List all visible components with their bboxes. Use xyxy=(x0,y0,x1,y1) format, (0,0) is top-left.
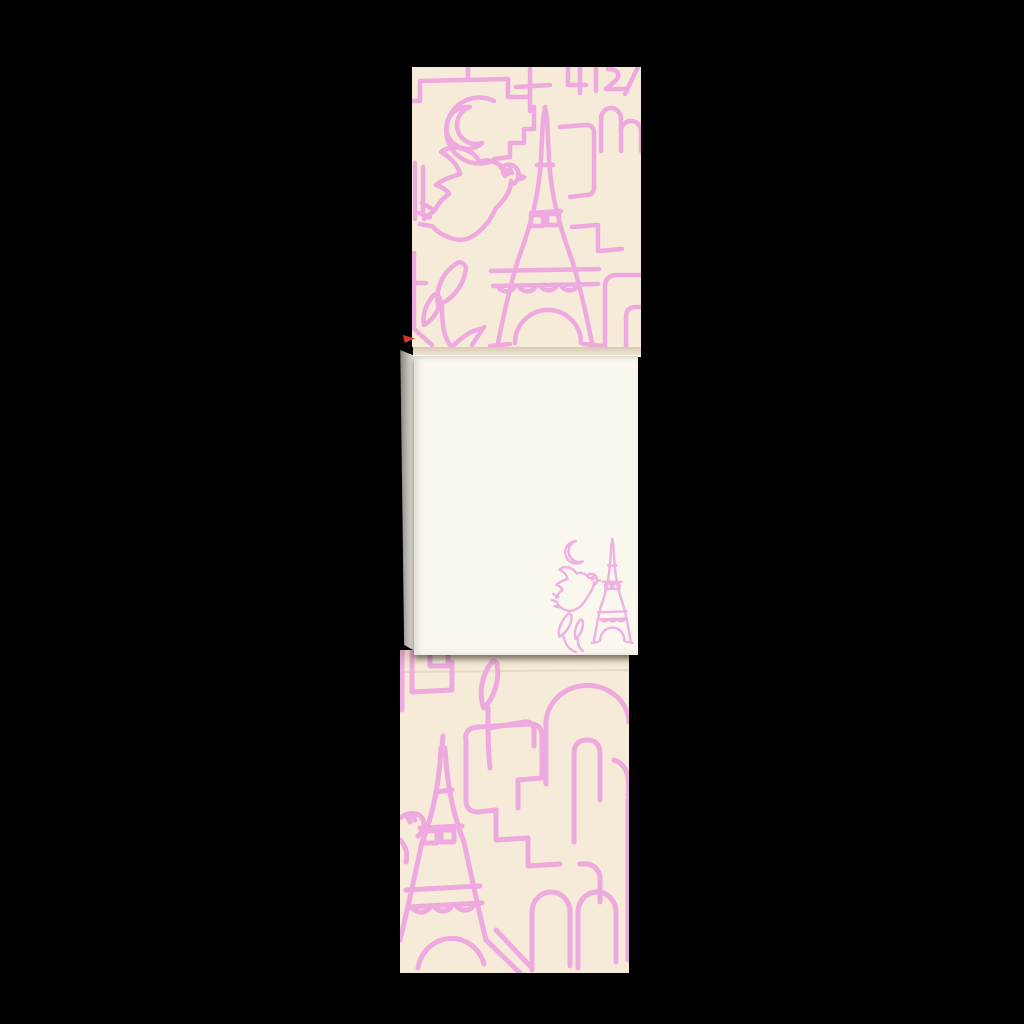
eiffel-tower-icon xyxy=(592,539,633,643)
paper-stack-side-edge xyxy=(399,350,415,651)
corner-art xyxy=(551,535,637,653)
double-arch-motif xyxy=(601,108,641,151)
cover-pattern-art xyxy=(412,67,641,347)
back-sheet-bottom xyxy=(400,650,629,973)
leaf-sprig-motif xyxy=(481,661,534,768)
arches-motif xyxy=(532,685,629,970)
notepad-page xyxy=(414,356,638,655)
leaf-sprig-motif xyxy=(423,262,480,347)
flying-dove-icon xyxy=(552,567,600,611)
backdrop xyxy=(0,0,1024,1024)
crescent-moon-icon xyxy=(565,541,583,563)
back-pattern-art xyxy=(400,650,629,973)
page-corner-illustration xyxy=(551,535,637,653)
cover-sheet-top xyxy=(412,67,641,347)
fold-crease-line xyxy=(400,670,629,672)
leaf-sprig-icon xyxy=(559,613,583,652)
